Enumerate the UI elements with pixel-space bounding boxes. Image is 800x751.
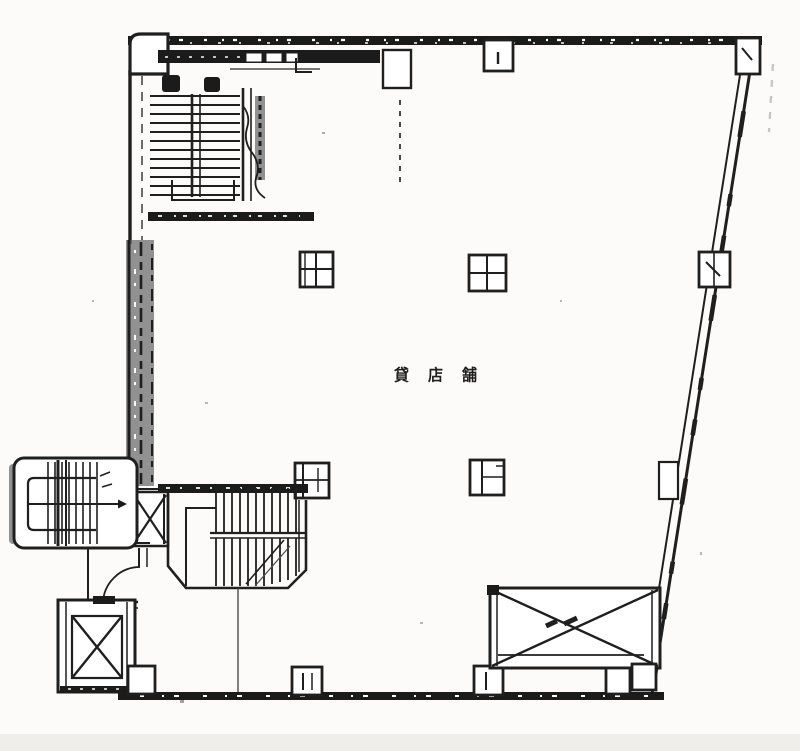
column-grid-icon xyxy=(470,460,504,495)
column-grid-icon xyxy=(300,252,333,287)
entry-corridor-wall xyxy=(158,50,411,88)
crossed-void-icon xyxy=(487,585,660,668)
elevator-door-jambs xyxy=(139,548,147,567)
staircase-top-left xyxy=(148,58,400,221)
scanned-floor-plan-page: 貸店舗 xyxy=(0,0,800,751)
left-wall-upper xyxy=(130,70,142,244)
top-wall xyxy=(128,36,762,45)
top-right-corner-column xyxy=(736,38,760,74)
staircase-icon xyxy=(168,488,306,588)
left-wall-thick-band xyxy=(126,240,154,486)
elevator-crossbox-icon xyxy=(58,596,135,693)
scan-edge-artifact xyxy=(0,734,800,751)
column-grid-icon xyxy=(474,666,503,695)
column-grid-icon xyxy=(469,255,506,291)
room-label-rental-shop: 貸店舗 xyxy=(394,363,496,385)
wall-bracket-column xyxy=(659,462,678,499)
column-grid-icon xyxy=(292,667,322,695)
exterior-staircase-icon xyxy=(9,458,150,548)
column-grid-icon xyxy=(484,40,513,71)
column-grid-icon xyxy=(128,666,155,694)
bottom-wall xyxy=(118,692,664,700)
right-slanted-wall xyxy=(643,52,773,694)
column-grid-icon xyxy=(606,664,656,694)
column-grid-icon xyxy=(699,252,730,287)
